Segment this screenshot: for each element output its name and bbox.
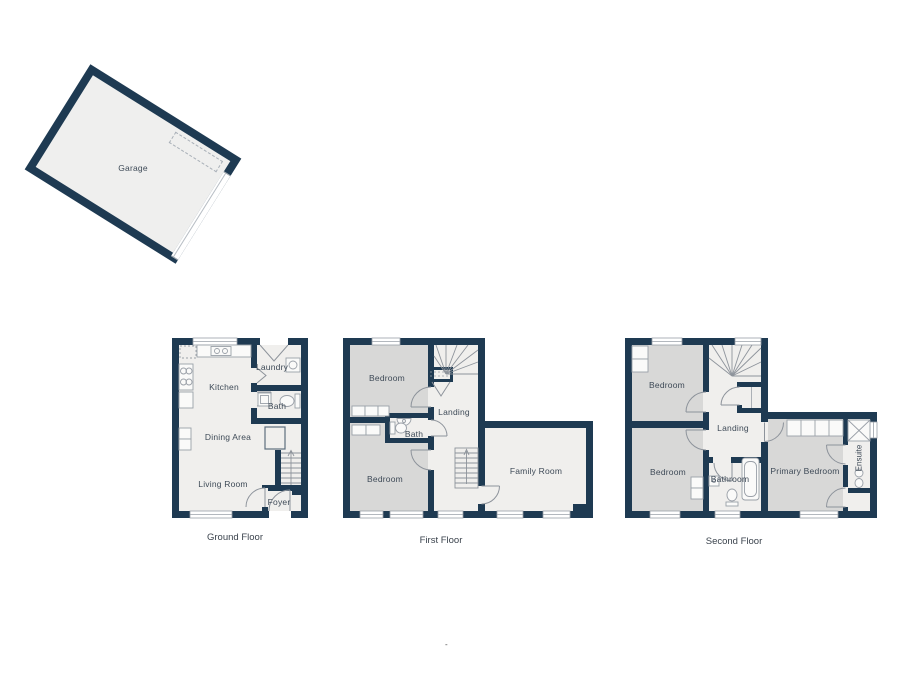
stove-icon — [179, 364, 193, 390]
family-room-label: Family Room — [510, 466, 562, 476]
ground-floor-plan: Kitchen Laundry Bath Dining Area Living … — [165, 330, 315, 525]
first-floor-title: First Floor — [420, 535, 463, 546]
foyer-label: Foyer — [268, 497, 291, 507]
second-bedroom-b-label: Bedroom — [650, 467, 686, 477]
floorplan-canvas: Garage — [0, 0, 900, 675]
toilet-icon — [727, 489, 737, 501]
toilet-icon — [855, 479, 863, 488]
footer-mark: - — [445, 640, 448, 649]
second-landing-label: Landing — [717, 423, 749, 433]
first-floor-svg — [340, 330, 600, 525]
toilet-tank-icon — [390, 422, 395, 434]
ensuite-label: Ensuite — [855, 445, 864, 472]
laundry-label: Laundry — [256, 362, 288, 372]
dining-label: Dining Area — [205, 432, 251, 442]
first-floor-plan: Bedroom Bedroom Bath Landing Family Room — [340, 330, 600, 525]
ground-bath-label: Bath — [268, 401, 286, 411]
garage-dashed-area — [169, 132, 223, 173]
garage-door — [171, 171, 231, 260]
toilet-tank-icon — [295, 394, 300, 408]
kitchen-label: Kitchen — [209, 382, 239, 392]
washer-icon — [286, 358, 300, 372]
second-floor-svg — [620, 330, 885, 525]
ground-floor-svg — [165, 330, 315, 525]
second-bedroom-a-label: Bedroom — [649, 380, 685, 390]
toilet-tank-icon — [726, 502, 738, 506]
bathroom-label: Bathroom — [711, 474, 749, 484]
living-label: Living Room — [198, 479, 247, 489]
garage-label: Garage — [118, 163, 148, 173]
first-bedroom-b-label: Bedroom — [367, 474, 403, 484]
second-floor-plan: Bedroom Bedroom Landing Bathroom Primary… — [620, 330, 885, 525]
first-bedroom-a-label: Bedroom — [369, 373, 405, 383]
second-floor-title: Second Floor — [706, 536, 763, 547]
ground-floor-title: Ground Floor — [207, 532, 263, 543]
first-landing-label: Landing — [438, 407, 470, 417]
first-bath-label: Bath — [405, 429, 423, 439]
primary-bedroom-label: Primary Bedroom — [770, 466, 839, 476]
